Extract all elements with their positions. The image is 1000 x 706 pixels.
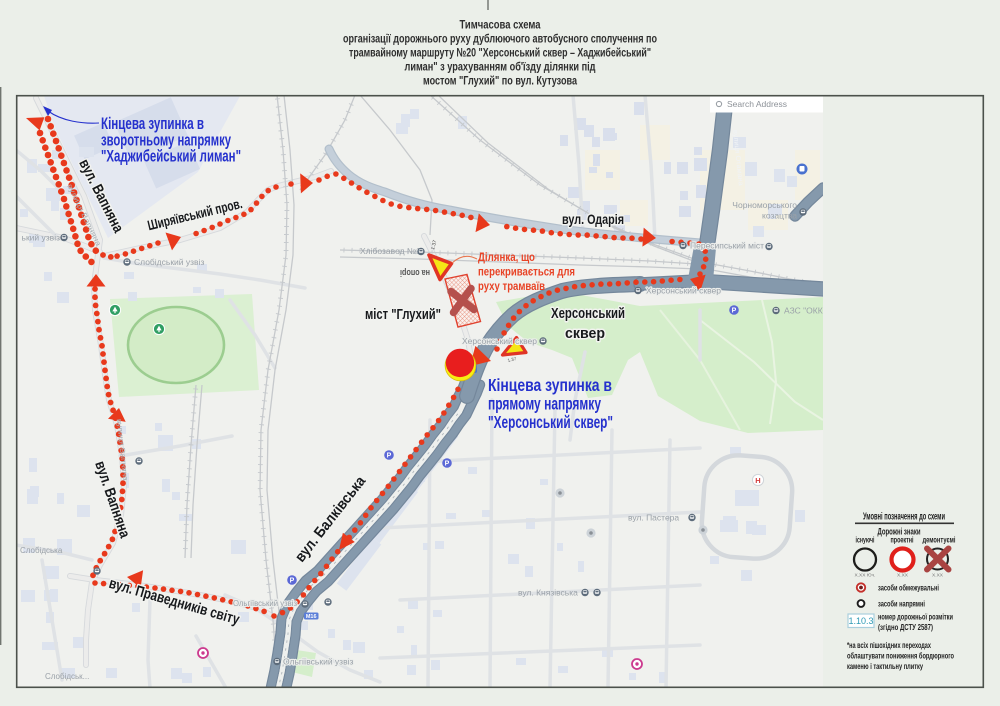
svg-text:Умовні позначення до схеми: Умовні позначення до схеми <box>863 512 945 523</box>
svg-text:P: P <box>445 461 450 468</box>
svg-text:(згідно ДСТУ 2587): (згідно ДСТУ 2587) <box>878 622 933 632</box>
svg-text:лиман" з урахуванням об'їзду д: лиман" з урахуванням об'їзду ділянки під <box>405 59 596 73</box>
svg-text:руху трамваїв: руху трамваїв <box>478 279 545 293</box>
svg-text:Херсонський: Херсонський <box>551 305 625 322</box>
svg-text:номер дорожньої розмітки: номер дорожньої розмітки <box>878 612 953 622</box>
svg-text:*на всіх пішохідних переходах: *на всіх пішохідних переходах <box>847 640 931 650</box>
svg-text:вул. Князівська: вул. Князівська <box>518 588 578 598</box>
svg-text:каменю і тактильну плитку: каменю і тактильну плитку <box>847 661 923 671</box>
svg-text:організації дорожнього руху ду: організації дорожнього руху дублюючого а… <box>343 32 657 46</box>
svg-text:Х.ХХ: Х.ХХ <box>932 573 944 579</box>
svg-text:засоби напрямні: засоби напрямні <box>878 599 925 609</box>
svg-text:ький узвіз: ький узвіз <box>22 233 61 243</box>
svg-text:"Хаджибейський лиман": "Хаджибейський лиман" <box>101 148 241 166</box>
svg-text:проектні: проектні <box>891 536 914 545</box>
svg-text:прямому напрямку: прямому напрямку <box>488 394 601 414</box>
svg-text:Х.ХХ Юч.: Х.ХХ Юч. <box>855 573 876 579</box>
svg-text:"Херсонський сквер": "Херсонський сквер" <box>488 412 613 432</box>
svg-text:Слобідський узвіз: Слобідський узвіз <box>134 257 204 267</box>
svg-text:Чорноморського: Чорноморського <box>732 200 797 210</box>
svg-text:на опорі: на опорі <box>400 267 430 278</box>
svg-text:демонтуємі: демонтуємі <box>923 536 956 545</box>
svg-text:Ділянка, що: Ділянка, що <box>478 250 535 264</box>
svg-text:1.10.3: 1.10.3 <box>848 616 873 626</box>
svg-text:Кінцева зупинка в: Кінцева зупинка в <box>101 115 204 133</box>
svg-text:Хлібозавод №1: Хлібозавод №1 <box>360 246 421 256</box>
svg-text:Н: Н <box>755 476 760 485</box>
svg-text:М16: М16 <box>306 614 317 620</box>
svg-text:перекривається для: перекривається для <box>478 265 575 279</box>
svg-text:існуючі: існуючі <box>856 536 875 545</box>
svg-text:облаштувати пониження бордюрно: облаштувати пониження бордюрного <box>847 651 954 661</box>
svg-text:засоби обмежувальні: засоби обмежувальні <box>878 583 939 593</box>
svg-text:вул. Одарія: вул. Одарія <box>562 211 624 227</box>
svg-text:Ольгіївський узвіз: Ольгіївський узвіз <box>233 598 297 608</box>
svg-text:Слобідськ...: Слобідськ... <box>45 672 89 681</box>
svg-text:Кінцева зупинка в: Кінцева зупинка в <box>488 375 612 395</box>
svg-text:P: P <box>732 308 737 315</box>
svg-text:Херсонський сквер: Херсонський сквер <box>646 286 721 296</box>
svg-text:трамвайному маршруту №20 "Херс: трамвайному маршруту №20 "Херсонський ск… <box>349 46 651 60</box>
svg-text:Ольгіївський узвіз: Ольгіївський узвіз <box>283 657 353 667</box>
svg-text:P: P <box>290 578 295 585</box>
svg-text:сквер: сквер <box>565 325 605 342</box>
svg-text:Херсонський сквер: Херсонський сквер <box>462 336 537 346</box>
svg-text:козацтва: козацтва <box>762 211 797 221</box>
svg-text:міст "Глухий": міст "Глухий" <box>365 307 441 323</box>
svg-text:мостом "Глухий" по вул. Кутузо: мостом "Глухий" по вул. Кутузова <box>423 73 577 87</box>
svg-text:Search Address: Search Address <box>727 99 787 109</box>
svg-text:Пересипський міст: Пересипський міст <box>690 241 764 251</box>
svg-text:P: P <box>387 453 392 460</box>
svg-text:Слобідська: Слобідська <box>20 546 63 555</box>
svg-text:Х.ХХ: Х.ХХ <box>897 573 909 579</box>
svg-text:вул. Пастера: вул. Пастера <box>628 513 679 523</box>
svg-text:Тимчасова схема: Тимчасова схема <box>460 18 541 32</box>
